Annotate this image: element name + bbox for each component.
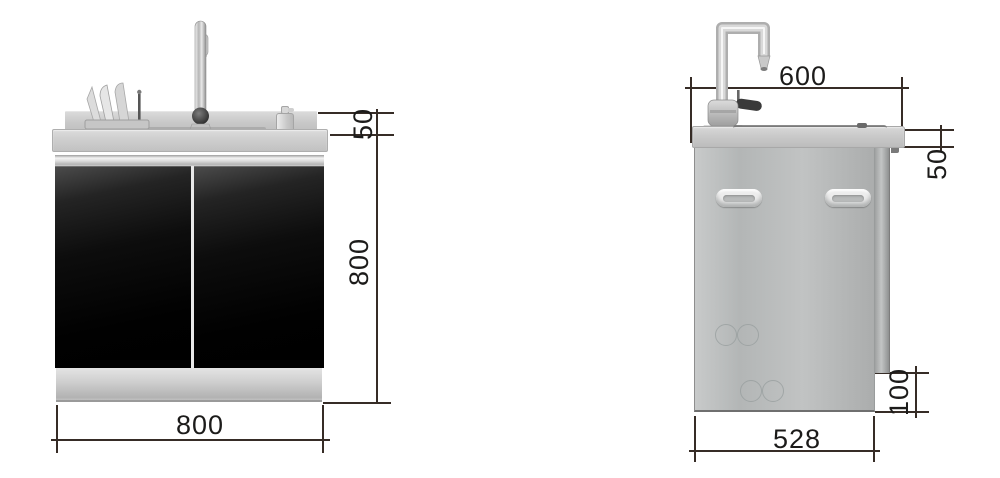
ext-line-width-right <box>322 405 324 453</box>
front-door-right-panel <box>194 166 324 368</box>
ext-line-bottom-depth-left <box>694 416 696 462</box>
front-sink-edge-line <box>148 127 266 132</box>
handle-slot <box>832 195 864 202</box>
front-plinth <box>56 368 322 402</box>
ext-line-cabinet-bottom <box>323 402 391 404</box>
knockout-circle-2 <box>737 324 759 346</box>
dimension-drawing: 50 800 800 60 <box>0 0 1000 478</box>
dim-label-bottom-depth: 528 <box>757 426 837 452</box>
front-door-left-panel <box>55 166 191 368</box>
soap-dispenser-spout <box>288 108 294 112</box>
side-counter-overhang-shadow <box>891 148 899 153</box>
knockout-circle-1 <box>715 324 737 346</box>
dim-label-counter-thickness: 50 <box>923 134 951 194</box>
knife-rack-icon <box>82 66 154 132</box>
side-handle-upper-left <box>716 189 762 207</box>
faucet-front-icon <box>186 18 218 136</box>
front-trim-band <box>55 155 324 166</box>
dim-line-kick-height <box>915 366 917 418</box>
front-doors <box>55 166 324 368</box>
front-countertop <box>52 129 328 152</box>
ext-line-counter-thickness-top <box>901 129 954 131</box>
dim-label-cabinet-height: 800 <box>345 232 373 292</box>
dim-label-backsplash-height: 50 <box>349 94 377 154</box>
side-deck-fitting <box>857 123 867 128</box>
faucet-side-icon <box>700 14 788 138</box>
ext-line-bottom-depth-right <box>873 416 875 462</box>
knockout-circle-4 <box>762 380 784 402</box>
dim-label-cabinet-width: 800 <box>160 412 240 438</box>
knockout-circle-3 <box>740 380 762 402</box>
ext-line-width-left <box>56 405 58 453</box>
handle-slot <box>723 195 755 202</box>
side-door-front-edge <box>875 148 890 373</box>
side-handle-upper-right <box>825 189 871 207</box>
side-cabinet-body <box>694 148 875 412</box>
